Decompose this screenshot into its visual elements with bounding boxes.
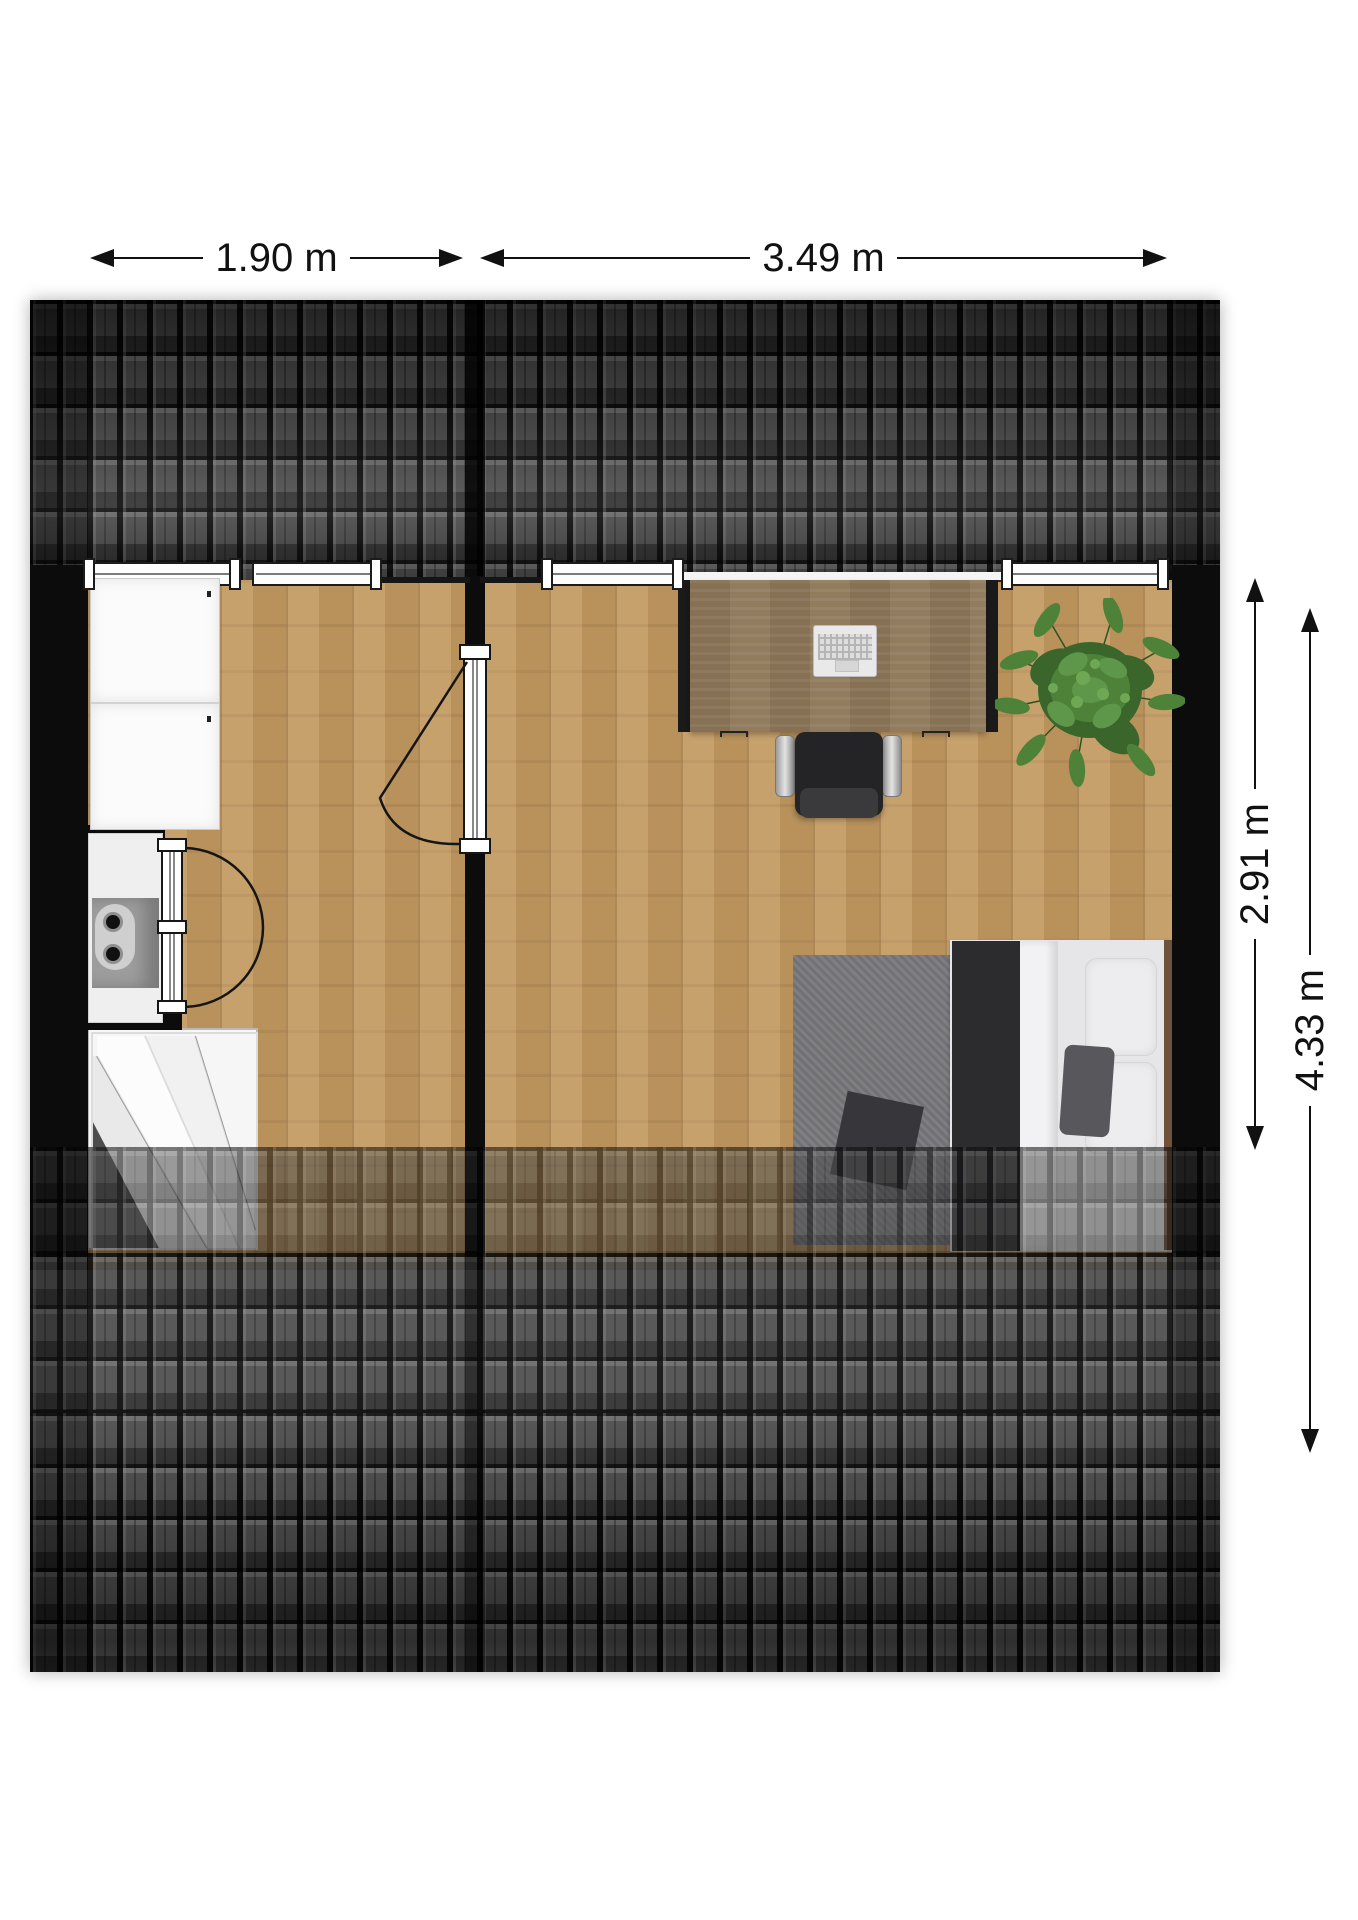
laptop: [813, 625, 877, 677]
dimension-line: [1254, 939, 1256, 1126]
roof-party-wall-seam: [465, 1147, 485, 1672]
roof-section-bottom-translucent: [30, 1147, 1220, 1253]
arrowhead-down-icon: [1301, 1429, 1319, 1453]
door-jamb: [157, 1000, 187, 1014]
arrowhead-left-icon: [480, 249, 504, 267]
roof-ridge-line: [30, 1410, 1220, 1413]
roof-edge-right: [1172, 1147, 1220, 1672]
dimension-line: [1309, 632, 1311, 955]
sink-counter: [88, 833, 163, 1023]
appliance-handle: [207, 716, 211, 722]
laptop-trackpad: [835, 660, 859, 672]
dimension-label: 3.49 m: [750, 238, 896, 278]
dimension-line: [504, 257, 750, 259]
window-left-2: [252, 562, 378, 586]
roof-shading: [30, 300, 1220, 583]
laptop-keyboard: [818, 634, 872, 660]
arrowhead-up-icon: [1301, 608, 1319, 632]
dimension-room-right-width: 3.49 m: [480, 234, 1167, 282]
roof-edge-left: [30, 1147, 88, 1672]
desk-side-panel-left: [678, 580, 690, 732]
desk-drawer-handle: [922, 731, 950, 737]
window-jamb: [541, 558, 553, 590]
dimension-total-depth: 4.33 m: [1286, 608, 1334, 1453]
faucet-knob: [103, 944, 123, 964]
floor-plan-canvas: 1.90 m 3.49 m 2.91 m 4.33 m: [0, 0, 1358, 1920]
front-wall-line: [375, 577, 470, 583]
arrowhead-left-icon: [90, 249, 114, 267]
dimension-label: 2.91 m: [1235, 789, 1275, 939]
dimension-line: [897, 257, 1143, 259]
stacked-appliances: [90, 578, 220, 830]
window-right-1: [545, 562, 680, 586]
door-main-room: [463, 648, 487, 847]
roof-edge-left: [30, 300, 88, 583]
potted-plant: [995, 598, 1185, 788]
dimension-room-left-width: 1.90 m: [90, 234, 463, 282]
dimension-line: [114, 257, 203, 259]
arrowhead-right-icon: [1143, 249, 1167, 267]
dimension-label: 1.90 m: [203, 238, 349, 278]
window-jamb: [1001, 558, 1013, 590]
door-jamb: [157, 920, 187, 934]
dimension-line: [1254, 602, 1256, 789]
roof-section-bottom: [30, 1412, 1220, 1672]
chair-armrest-left: [775, 735, 795, 797]
bed-pillow-top: [1085, 958, 1157, 1056]
window-jamb: [672, 558, 684, 590]
appliance-handle: [207, 591, 211, 597]
door-jamb: [459, 838, 491, 854]
dimension-line: [350, 257, 439, 259]
roof-party-wall-seam: [465, 300, 485, 583]
appliance-lower: [91, 704, 219, 829]
partition-wall-upper: [465, 576, 485, 650]
window-jamb: [1157, 558, 1169, 590]
roof-section-bottom-mid: [30, 1253, 1220, 1412]
chair-armrest-right: [882, 735, 902, 797]
front-wall-line: [480, 577, 550, 583]
door-jamb: [157, 838, 187, 852]
desk-drawer-handle: [720, 731, 748, 737]
roof-section-top: [30, 300, 1220, 583]
appliance-upper: [91, 579, 219, 704]
door-jamb: [459, 644, 491, 660]
roof-edge-right: [1172, 300, 1220, 583]
window-jamb: [229, 558, 241, 590]
roof-shading: [30, 1412, 1220, 1672]
arrowhead-down-icon: [1246, 1126, 1264, 1150]
plant-foliage: [995, 598, 1185, 788]
dimension-line: [1309, 1106, 1311, 1429]
arrowhead-right-icon: [439, 249, 463, 267]
window-right-2: [1005, 562, 1169, 586]
dimension-room-depth: 2.91 m: [1231, 578, 1279, 1150]
faucet-knob: [103, 912, 123, 932]
window-jamb: [370, 558, 382, 590]
office-chair-backrest: [800, 788, 878, 818]
window-jamb: [83, 558, 95, 590]
bed-cushion: [1059, 1044, 1115, 1137]
dimension-label: 4.33 m: [1290, 955, 1330, 1105]
arrowhead-up-icon: [1246, 578, 1264, 602]
